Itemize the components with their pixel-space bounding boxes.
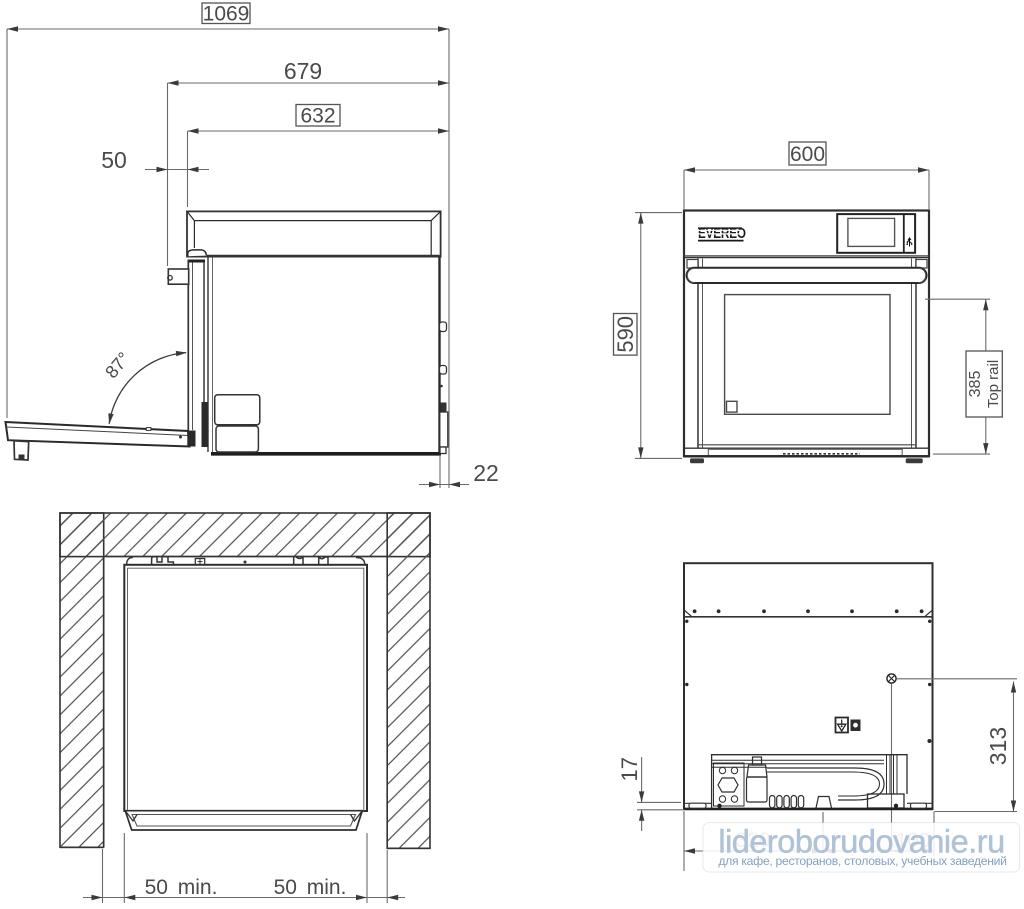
svg-text:50 min.: 50 min. [145,876,218,899]
svg-text:590: 590 [613,316,638,353]
svg-text:EVEREO: EVEREO [698,225,746,242]
svg-text:Top rail: Top rail [985,360,1002,408]
svg-text:17: 17 [617,757,642,781]
svg-text:для кафе, ресторанов, столовых: для кафе, ресторанов, столовых, учебных … [718,854,1006,868]
svg-text:600: 600 [790,143,825,166]
svg-text:385: 385 [967,371,984,398]
svg-text:313: 313 [985,727,1011,765]
svg-text:632: 632 [300,105,335,128]
svg-text:679: 679 [284,58,322,84]
svg-text:1069: 1069 [203,3,250,26]
svg-text:50: 50 [101,147,127,173]
svg-text:50 min.: 50 min. [274,876,347,899]
svg-text:22: 22 [473,460,499,486]
